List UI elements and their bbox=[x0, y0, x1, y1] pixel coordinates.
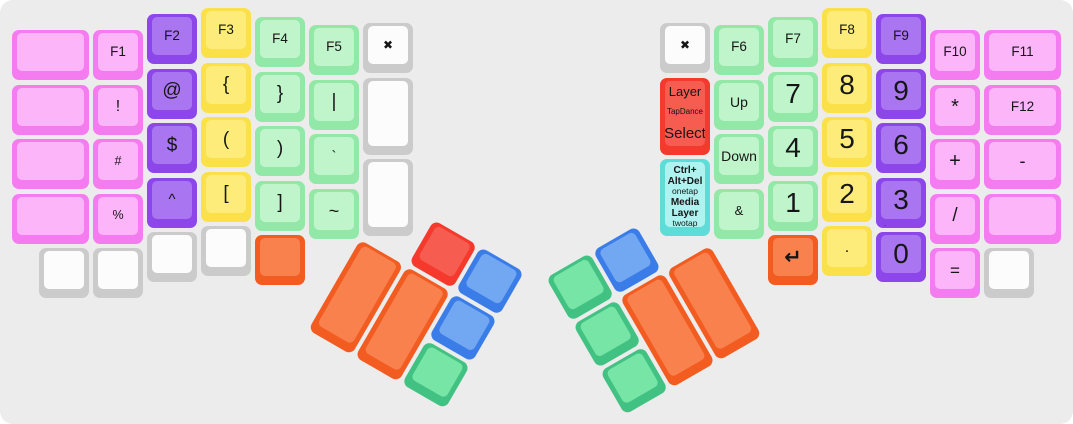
keycap-top bbox=[989, 251, 1029, 289]
key-x-left[interactable]: ✖ bbox=[363, 23, 413, 73]
keycap-top: F4 bbox=[260, 20, 300, 58]
keycap-top bbox=[17, 33, 84, 71]
key-f5[interactable]: F5 bbox=[309, 25, 359, 75]
key-blank[interactable] bbox=[39, 248, 89, 298]
keycap-top: & bbox=[719, 192, 759, 230]
key-label: Down bbox=[721, 149, 757, 163]
key-blank[interactable] bbox=[984, 194, 1061, 244]
keycap-top: 3 bbox=[881, 181, 921, 219]
keycap-top: F6 bbox=[719, 28, 759, 66]
keycap-top: F7 bbox=[773, 20, 813, 58]
key-ctrl-alt-del-media-layer[interactable]: Ctrl+Alt+DelonetapMediaLayertwotap bbox=[660, 159, 710, 236]
keycap-top: ] bbox=[260, 184, 300, 222]
keycap-top: F8 bbox=[827, 11, 867, 49]
key-label: ! bbox=[116, 99, 120, 115]
key-left-brace[interactable]: { bbox=[201, 63, 251, 113]
keycap-top: # bbox=[98, 142, 138, 180]
keycap-top: ) bbox=[260, 129, 300, 167]
key-f1[interactable]: F1 bbox=[93, 30, 143, 80]
key-2[interactable]: 2 bbox=[822, 172, 872, 222]
key-backtick[interactable]: ` bbox=[309, 134, 359, 184]
key-caret[interactable]: ^ bbox=[147, 178, 197, 228]
key-slash[interactable]: / bbox=[930, 194, 980, 244]
key-up[interactable]: Up bbox=[714, 80, 764, 130]
key-label: 2 bbox=[839, 180, 855, 208]
key-label: F8 bbox=[839, 23, 855, 37]
key-f12[interactable]: F12 bbox=[984, 85, 1061, 135]
key-label: TapDance bbox=[667, 108, 703, 116]
keycap-top: $ bbox=[152, 126, 192, 164]
keycap-top: 8 bbox=[827, 66, 867, 104]
key-blank[interactable] bbox=[984, 248, 1034, 298]
key-label: F11 bbox=[1011, 45, 1033, 59]
keycap-top: F10 bbox=[935, 33, 975, 71]
key-label: % bbox=[112, 209, 123, 222]
keycap-top bbox=[552, 258, 606, 311]
key-blank[interactable] bbox=[201, 226, 251, 276]
keycap-top: ✖ bbox=[665, 26, 705, 64]
key-label: F3 bbox=[218, 23, 234, 37]
key-label: { bbox=[223, 75, 229, 94]
keycap-top bbox=[206, 229, 246, 267]
key-label: . bbox=[845, 240, 849, 256]
key-blank[interactable] bbox=[363, 159, 413, 236]
keycap-top: F3 bbox=[206, 11, 246, 49]
key-7[interactable]: 7 bbox=[768, 72, 818, 122]
key-label: F6 bbox=[731, 40, 747, 54]
keycap-top bbox=[438, 299, 492, 352]
keycap-top: ` bbox=[314, 137, 354, 175]
key-label: [ bbox=[223, 184, 228, 203]
key-label: ^ bbox=[168, 192, 175, 207]
keycap-top: Ctrl+Alt+DelonetapMediaLayertwotap bbox=[665, 162, 705, 227]
keycap-top: 6 bbox=[881, 126, 921, 164]
key-0[interactable]: 0 bbox=[876, 232, 926, 282]
key-percent[interactable]: % bbox=[93, 194, 143, 244]
key-label: ] bbox=[277, 193, 282, 212]
keycap-top: = bbox=[935, 251, 975, 289]
key-right-bracket[interactable]: ] bbox=[255, 181, 305, 231]
key-at[interactable]: @ bbox=[147, 69, 197, 119]
key-blank[interactable] bbox=[12, 30, 89, 80]
key-label: 5 bbox=[839, 125, 855, 153]
key-label: F2 bbox=[164, 29, 180, 43]
keycap-top: . bbox=[827, 229, 867, 267]
key-label: ` bbox=[332, 149, 337, 164]
key-f9[interactable]: F9 bbox=[876, 14, 926, 64]
keycap-top: ! bbox=[98, 88, 138, 126]
key-label: twotap bbox=[672, 219, 697, 227]
key-label: Layer bbox=[669, 85, 702, 99]
close-icon: ✖ bbox=[680, 39, 690, 51]
key-label: = bbox=[950, 262, 960, 279]
key-plus[interactable]: + bbox=[930, 139, 980, 189]
keycap-top: - bbox=[989, 142, 1056, 180]
key-blank[interactable] bbox=[363, 78, 413, 155]
key-label: 9 bbox=[893, 77, 909, 105]
key-right-paren[interactable]: ) bbox=[255, 126, 305, 176]
key-left-paren[interactable]: ( bbox=[201, 117, 251, 167]
keycap-top bbox=[98, 251, 138, 289]
key-label: | bbox=[332, 92, 337, 111]
key-label: F12 bbox=[1011, 100, 1034, 114]
keycap-top bbox=[44, 251, 84, 289]
key-label: 8 bbox=[839, 71, 855, 99]
keycap-top bbox=[989, 197, 1056, 235]
keycap-top: 5 bbox=[827, 120, 867, 158]
keyboard-canvas: F1!#%F2@$^F3{([F4})]F5|`~✖✖LayerTapDance… bbox=[0, 0, 1073, 424]
keycap-top: [ bbox=[206, 175, 246, 213]
key-enter[interactable]: ↵ bbox=[768, 235, 818, 285]
key-label: 3 bbox=[893, 186, 909, 214]
keycap-top: F1 bbox=[98, 33, 138, 71]
key-blank[interactable] bbox=[12, 194, 89, 244]
keycap-top: 9 bbox=[881, 72, 921, 110]
key-down[interactable]: Down bbox=[714, 134, 764, 184]
keycap-top bbox=[579, 305, 633, 358]
key-label: F5 bbox=[326, 40, 342, 54]
key-right-brace[interactable]: } bbox=[255, 72, 305, 122]
keycap-top: F12 bbox=[989, 88, 1056, 126]
key-label: / bbox=[952, 206, 957, 225]
key-f11[interactable]: F11 bbox=[984, 30, 1061, 80]
keycap-top: F9 bbox=[881, 17, 921, 55]
key-label: Select bbox=[665, 126, 705, 142]
keycap-top: % bbox=[98, 197, 138, 235]
keycap-top: } bbox=[260, 75, 300, 113]
key-3[interactable]: 3. bbox=[876, 178, 926, 228]
key-blank[interactable] bbox=[12, 85, 89, 135]
keycap-top: 2 bbox=[827, 175, 867, 213]
key-blank[interactable] bbox=[147, 232, 197, 282]
key-period[interactable]: . bbox=[822, 226, 872, 276]
key-label: F9 bbox=[893, 29, 909, 43]
key-label: - bbox=[1020, 152, 1026, 170]
keycap-top bbox=[606, 352, 660, 405]
keycap-top: F2 bbox=[152, 17, 192, 55]
keycap-top: LayerTapDanceSelect bbox=[665, 81, 705, 146]
keycap-top: * bbox=[935, 88, 975, 126]
keycap-top: ( bbox=[206, 120, 246, 158]
keycap-top bbox=[411, 346, 465, 399]
key-label: F4 bbox=[272, 32, 288, 46]
keycap-top bbox=[17, 88, 84, 126]
key-label: 7 bbox=[785, 80, 801, 108]
key-label: & bbox=[735, 204, 744, 217]
keycap-top: Down bbox=[719, 137, 759, 175]
enter-icon: ↵ bbox=[784, 247, 802, 268]
keycap-top: + bbox=[935, 142, 975, 180]
keycap-top: 4 bbox=[773, 129, 813, 167]
close-icon: ✖ bbox=[383, 39, 393, 51]
key-f3[interactable]: F3 bbox=[201, 8, 251, 58]
key-asterisk[interactable]: * bbox=[930, 85, 980, 135]
key-label: ) bbox=[277, 139, 283, 158]
key-label: # bbox=[115, 155, 122, 168]
key-label: } bbox=[277, 84, 283, 103]
key-label: 0 bbox=[893, 240, 909, 268]
key-left-bracket[interactable]: [ bbox=[201, 172, 251, 222]
keycap-top: 0 bbox=[881, 235, 921, 273]
key-label: F10 bbox=[943, 45, 966, 59]
key-label: + bbox=[949, 151, 961, 171]
keycap-top: { bbox=[206, 66, 246, 104]
keycap-top: 7 bbox=[773, 75, 813, 113]
key-layer-tapdance-select[interactable]: LayerTapDanceSelect bbox=[660, 78, 710, 155]
key-exclamation[interactable]: ! bbox=[93, 85, 143, 135]
key-label: @ bbox=[162, 81, 181, 100]
keycap-top: ~ bbox=[314, 192, 354, 230]
keycap-top: ✖ bbox=[368, 26, 408, 64]
keycap-top: F11 bbox=[989, 33, 1056, 71]
key-label: ~ bbox=[329, 202, 340, 220]
keycap-top bbox=[260, 238, 300, 276]
key-hash[interactable]: # bbox=[93, 139, 143, 189]
key-label: F7 bbox=[785, 32, 801, 46]
key-f7[interactable]: F7 bbox=[768, 17, 818, 67]
key-6[interactable]: 6 bbox=[876, 123, 926, 173]
key-5[interactable]: 5 bbox=[822, 117, 872, 167]
key-blank[interactable] bbox=[12, 139, 89, 189]
key-orange-blank[interactable] bbox=[255, 235, 305, 285]
keycap-top: | bbox=[314, 83, 354, 121]
key-label: onetap bbox=[672, 187, 698, 196]
keycap-top: Up bbox=[719, 83, 759, 121]
key-f2[interactable]: F2 bbox=[147, 14, 197, 64]
key-equals[interactable]: = bbox=[930, 248, 980, 298]
keycap-top: ↵ bbox=[773, 238, 813, 276]
key-label: 1 bbox=[785, 189, 801, 217]
keycap-top bbox=[418, 225, 472, 278]
key-minus[interactable]: - bbox=[984, 139, 1061, 189]
key-label: 6 bbox=[893, 131, 909, 159]
keycap-top bbox=[465, 252, 519, 305]
key-ampersand[interactable]: & bbox=[714, 189, 764, 239]
key-f4[interactable]: F4 bbox=[255, 17, 305, 67]
key-label: * bbox=[951, 97, 959, 117]
key-label: F1 bbox=[110, 45, 126, 59]
keycap-top: / bbox=[935, 197, 975, 235]
key-1[interactable]: 1 bbox=[768, 181, 818, 231]
keycap-top bbox=[152, 235, 192, 273]
key-f10[interactable]: F10 bbox=[930, 30, 980, 80]
key-front-legend: . bbox=[884, 220, 886, 228]
keycap-top bbox=[368, 162, 408, 227]
key-x-right[interactable]: ✖ bbox=[660, 23, 710, 73]
keycap-top: @ bbox=[152, 72, 192, 110]
key-blank[interactable] bbox=[93, 248, 143, 298]
key-4[interactable]: 4 bbox=[768, 126, 818, 176]
keycap-top: 1 bbox=[773, 184, 813, 222]
keycap-top bbox=[368, 81, 408, 146]
keycap-top bbox=[17, 197, 84, 235]
key-tilde[interactable]: ~ bbox=[309, 189, 359, 239]
keycap-top: F5 bbox=[314, 28, 354, 66]
key-label: 4 bbox=[785, 134, 801, 162]
key-label: Up bbox=[730, 95, 748, 109]
key-label: $ bbox=[167, 136, 178, 155]
key-9[interactable]: 9 bbox=[876, 69, 926, 119]
key-dollar[interactable]: $ bbox=[147, 123, 197, 173]
keycap-top bbox=[599, 231, 653, 284]
keycap-top: ^ bbox=[152, 181, 192, 219]
key-8[interactable]: 8 bbox=[822, 63, 872, 113]
keycap-top bbox=[17, 142, 84, 180]
key-f8[interactable]: F8 bbox=[822, 8, 872, 58]
key-pipe[interactable]: | bbox=[309, 80, 359, 130]
key-f6[interactable]: F6 bbox=[714, 25, 764, 75]
key-label: ( bbox=[223, 130, 229, 149]
